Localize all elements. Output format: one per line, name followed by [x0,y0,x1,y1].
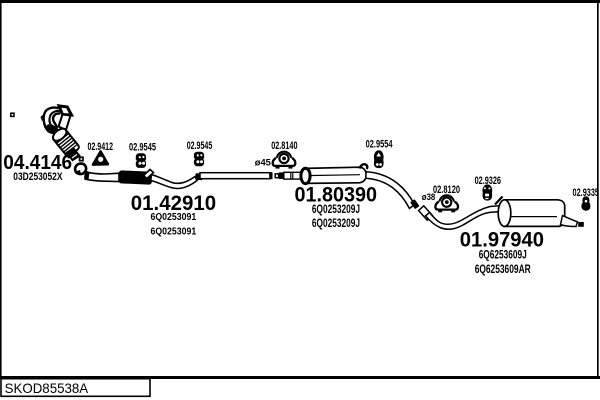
svg-text:02.8120: 02.8120 [433,184,460,196]
svg-text:02.9412: 02.9412 [88,141,114,153]
svg-text:6Q6253609J: 6Q6253609J [479,247,527,261]
svg-text:ø38: ø38 [422,192,436,203]
svg-text:6Q0253209J: 6Q0253209J [312,202,360,216]
svg-text:02.9545: 02.9545 [129,141,156,153]
svg-text:6Q6253609AR: 6Q6253609AR [475,262,531,276]
svg-text:02.9326: 02.9326 [475,175,501,187]
svg-text:6Q0253091: 6Q0253091 [151,227,197,238]
svg-text:6Q0253091: 6Q0253091 [151,212,197,223]
svg-text:6Q0253209J: 6Q0253209J [312,216,360,230]
svg-text:02.9545: 02.9545 [187,140,213,152]
svg-text:02.9335: 02.9335 [573,187,600,199]
svg-text:02.9554: 02.9554 [366,139,393,151]
svg-text:02.8140: 02.8140 [271,140,297,152]
svg-text:03D253052X: 03D253052X [13,171,63,183]
svg-text:ø45: ø45 [255,158,272,169]
svg-text:SKOD85538A: SKOD85538A [5,381,89,396]
